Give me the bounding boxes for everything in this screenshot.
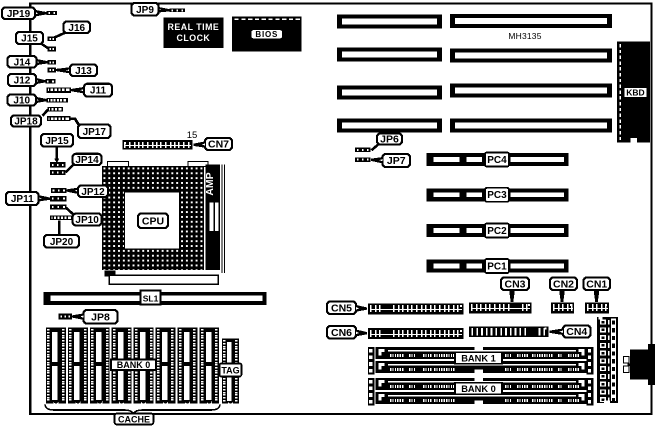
svg-text:JP8: JP8 (91, 311, 110, 323)
svg-text:J13: J13 (75, 66, 92, 77)
svg-text:JP11: JP11 (11, 194, 34, 205)
svg-text:AMP: AMP (204, 172, 216, 195)
svg-text:BANK 0: BANK 0 (117, 360, 151, 370)
svg-text:PC3: PC3 (487, 190, 507, 201)
svg-text:J14: J14 (14, 57, 31, 68)
svg-text:CN3: CN3 (504, 278, 525, 290)
svg-text:CN5: CN5 (331, 302, 352, 314)
svg-text:JP14: JP14 (75, 155, 99, 166)
svg-text:JP7: JP7 (387, 155, 406, 167)
svg-text:PC2: PC2 (487, 226, 507, 237)
svg-text:JP6: JP6 (380, 134, 399, 146)
svg-text:CN1: CN1 (586, 278, 607, 290)
svg-text:JP9: JP9 (136, 5, 154, 16)
svg-text:BANK 0: BANK 0 (461, 384, 496, 394)
svg-text:JP10: JP10 (75, 215, 99, 226)
svg-text:TAG: TAG (221, 366, 239, 376)
svg-text:JP20: JP20 (50, 237, 74, 248)
svg-text:PC1: PC1 (487, 261, 507, 272)
svg-text:JP18: JP18 (14, 117, 38, 128)
svg-text:MH3135: MH3135 (508, 31, 541, 41)
svg-text:JP12: JP12 (81, 187, 105, 198)
svg-text:BANK 1: BANK 1 (461, 353, 496, 363)
svg-text:CPU: CPU (142, 215, 164, 227)
svg-text:CN4: CN4 (566, 326, 587, 338)
svg-text:CN7: CN7 (208, 139, 229, 151)
svg-text:J16: J16 (68, 23, 85, 34)
svg-text:BIOS: BIOS (255, 30, 278, 39)
svg-text:REAL TIME: REAL TIME (168, 22, 220, 32)
svg-text:JP17: JP17 (83, 127, 107, 138)
svg-text:J15: J15 (21, 34, 38, 45)
svg-text:CACHE: CACHE (118, 414, 150, 424)
svg-text:JP15: JP15 (45, 136, 69, 147)
svg-text:J11: J11 (90, 86, 107, 97)
svg-text:J12: J12 (14, 76, 31, 87)
svg-text:CLOCK: CLOCK (177, 33, 211, 43)
svg-text:CN2: CN2 (553, 278, 574, 290)
svg-text:SL1: SL1 (143, 294, 159, 304)
svg-text:JP19: JP19 (7, 9, 31, 20)
svg-text:CN6: CN6 (331, 327, 352, 339)
svg-text:15: 15 (187, 130, 198, 141)
svg-text:PC4: PC4 (487, 155, 507, 166)
svg-text:J10: J10 (13, 96, 30, 107)
svg-text:KBD: KBD (626, 87, 644, 97)
